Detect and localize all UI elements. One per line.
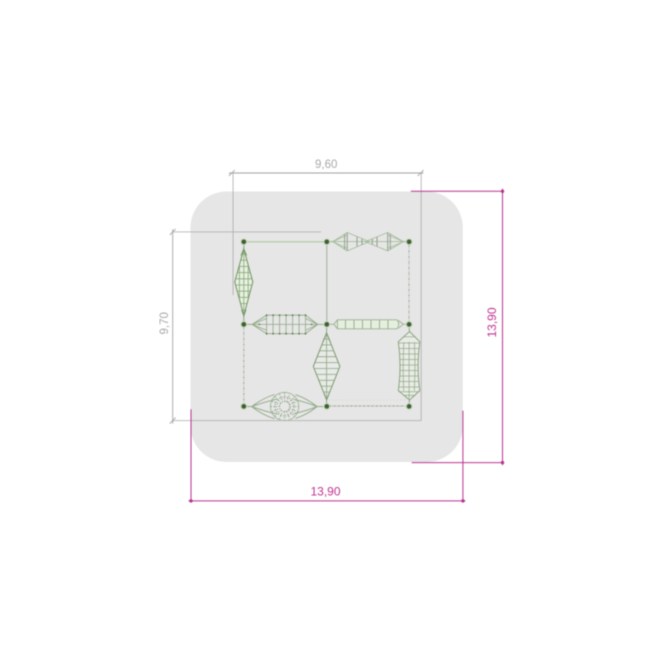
- svg-text:9,70: 9,70: [159, 312, 171, 334]
- svg-text:9,60: 9,60: [315, 159, 337, 171]
- svg-text:13,90: 13,90: [310, 484, 340, 498]
- svg-text:13,90: 13,90: [485, 307, 499, 337]
